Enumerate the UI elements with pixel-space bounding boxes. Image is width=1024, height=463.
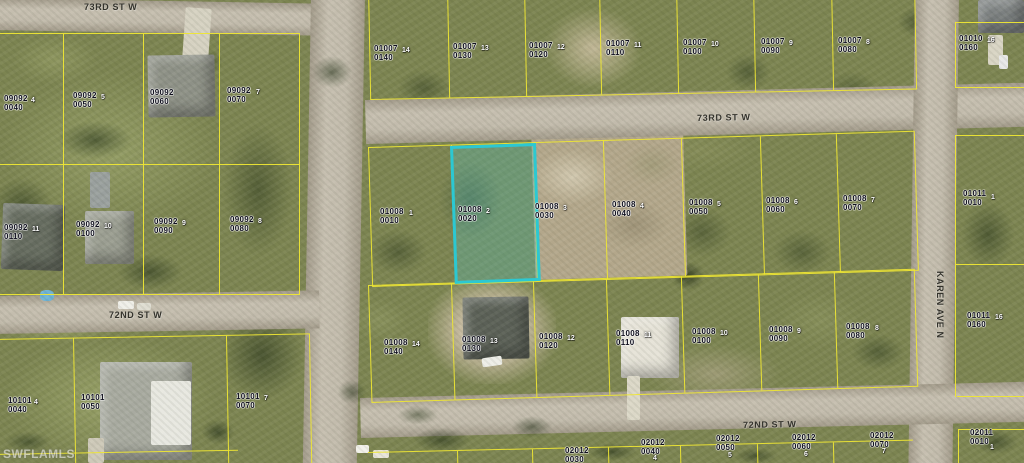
parcel-label-02012-0030: 02012 0030 — [565, 446, 589, 463]
parcel-marker: 1 — [991, 194, 995, 202]
parcel-label-02012-0070: 02012 0070 — [870, 431, 894, 449]
parcel-marker: 7 — [871, 197, 875, 205]
parcel-label-01007-0120: 01007 0120 — [529, 41, 553, 59]
parcel-marker: 6 — [794, 199, 798, 207]
parcel-label-09092-0080: 09092 0080 — [230, 215, 254, 233]
parcel-label-09092-0040: 09092 0040 — [4, 94, 28, 112]
street-label: 73RD ST W — [84, 2, 137, 12]
parcel-label-01008-0090: 01008 0090 — [769, 325, 793, 343]
parcel-label-01008-0140: 01008 0140 — [384, 338, 408, 356]
parcel-marker: 11 — [32, 226, 39, 234]
parcel-marker: 4 — [31, 97, 35, 105]
parcel-label-01008-0070: 01008 0070 — [843, 194, 867, 212]
parcel-marker: 16 — [995, 314, 1003, 322]
street-label: KAREN AVE N — [935, 271, 945, 339]
parcel-label-09092-0070: 09092 0070 — [227, 86, 251, 104]
parcel-marker: 9 — [182, 220, 186, 228]
parcel-marker: 2 — [486, 208, 490, 216]
parcel-label-02012-0050: 02012 0050 — [716, 434, 740, 452]
parcel-label-01008-0020: 01008 0020 — [458, 205, 482, 223]
parcel-label-02012-0060: 02012 0060 — [792, 433, 816, 451]
parcel-label-01011-0160: 01011 0160 — [967, 311, 990, 329]
parcel-label-01008-0110: 01008 0110 — [616, 329, 640, 347]
parcel-label-01007-0110: 01007 0110 — [606, 39, 630, 57]
parcel-marker: 4 — [653, 455, 657, 463]
street-label: 73RD ST W — [697, 112, 751, 123]
street-label: 72ND ST W — [743, 419, 797, 430]
parcel-label-01008-0080: 01008 0080 — [846, 322, 870, 340]
parcel-label-01011-0010: 01011 0010 — [963, 189, 986, 207]
parcel-label-01008-0030: 01008 0030 — [535, 202, 559, 220]
street-label: 72ND ST W — [109, 310, 162, 320]
parcel-label-09092-0060: 09092 0060 — [150, 88, 174, 106]
parcel-label-01008-0050: 01008 0050 — [689, 198, 713, 216]
parcel-label-02012-0040: 02012 0040 — [641, 438, 665, 456]
parcel-marker: 11 — [644, 332, 651, 340]
parcel-marker: 14 — [402, 47, 410, 55]
parcel-label-01008-0100: 01008 0100 — [692, 327, 716, 345]
parcel-marker: 4 — [34, 399, 38, 407]
aerial-parcel-map[interactable]: SWFLAMLS 73RD ST W73RD ST W72ND ST W72ND… — [0, 0, 1024, 463]
parcel-label-09092-0090: 09092 0090 — [154, 217, 178, 235]
parcel-marker: 5 — [728, 452, 732, 460]
parcel-marker: 7 — [264, 395, 268, 403]
parcel-marker: 10 — [104, 223, 112, 231]
parcel-marker: 12 — [567, 335, 575, 343]
parcel-marker: 1 — [409, 210, 413, 218]
parcel-marker: 16 — [987, 37, 995, 45]
parcel-label-10101-0070: 10101 0070 — [236, 392, 260, 410]
parcel-marker: 11 — [634, 42, 641, 50]
parcel-marker: 6 — [804, 451, 808, 459]
parcel-marker: 10 — [720, 330, 728, 338]
parcel-label-09092-0100: 09092 0100 — [76, 220, 100, 238]
parcel-label-01008-0120: 01008 0120 — [539, 332, 563, 350]
parcel-marker: 14 — [412, 341, 420, 349]
parcel-marker: 4 — [640, 203, 644, 211]
parcel-marker: 5 — [717, 201, 721, 209]
parcel-marker: 7 — [256, 89, 260, 97]
parcel-label-01008-0130: 01008 0130 — [462, 335, 486, 353]
parcel-marker: 5 — [101, 94, 105, 102]
watermark: SWFLAMLS — [3, 447, 75, 461]
parcel-label-01008-0060: 01008 0060 — [766, 196, 790, 214]
parcel-label-01008-0010: 01008 0010 — [380, 207, 404, 225]
parcel-label-10101-0040: 10101 0040 — [8, 396, 32, 414]
labels-layer: SWFLAMLS 73RD ST W73RD ST W72ND ST W72ND… — [0, 0, 1024, 463]
parcel-marker: 13 — [490, 338, 498, 346]
parcel-marker: 10 — [711, 41, 719, 49]
parcel-marker: 8 — [866, 39, 870, 47]
parcel-label-01007-0100: 01007 0100 — [683, 38, 707, 56]
parcel-label-09092-0050: 09092 0050 — [73, 91, 97, 109]
parcel-marker: 13 — [481, 45, 489, 53]
parcel-label-09092-0110: 09092 0110 — [4, 223, 28, 241]
parcel-label-10101-0050: 10101 0050 — [81, 393, 105, 411]
parcel-label-01008-0040: 01008 0040 — [612, 200, 636, 218]
parcel-marker: 1 — [990, 444, 994, 452]
parcel-label-01007-0130: 01007 0130 — [453, 42, 477, 60]
parcel-label-01007-0090: 01007 0090 — [761, 37, 785, 55]
parcel-label-01007-0140: 01007 0140 — [374, 44, 398, 62]
parcel-label-01007-0080: 01007 0080 — [838, 36, 862, 54]
parcel-marker: 12 — [557, 44, 565, 52]
parcel-marker: 3 — [563, 205, 567, 213]
parcel-marker: 8 — [875, 325, 879, 333]
parcel-marker: 7 — [882, 448, 886, 456]
parcel-marker: 9 — [797, 328, 801, 336]
parcel-label-01010-0160: 01010 0160 — [959, 34, 983, 52]
parcel-marker: 9 — [789, 40, 793, 48]
parcel-marker: 8 — [258, 218, 262, 226]
